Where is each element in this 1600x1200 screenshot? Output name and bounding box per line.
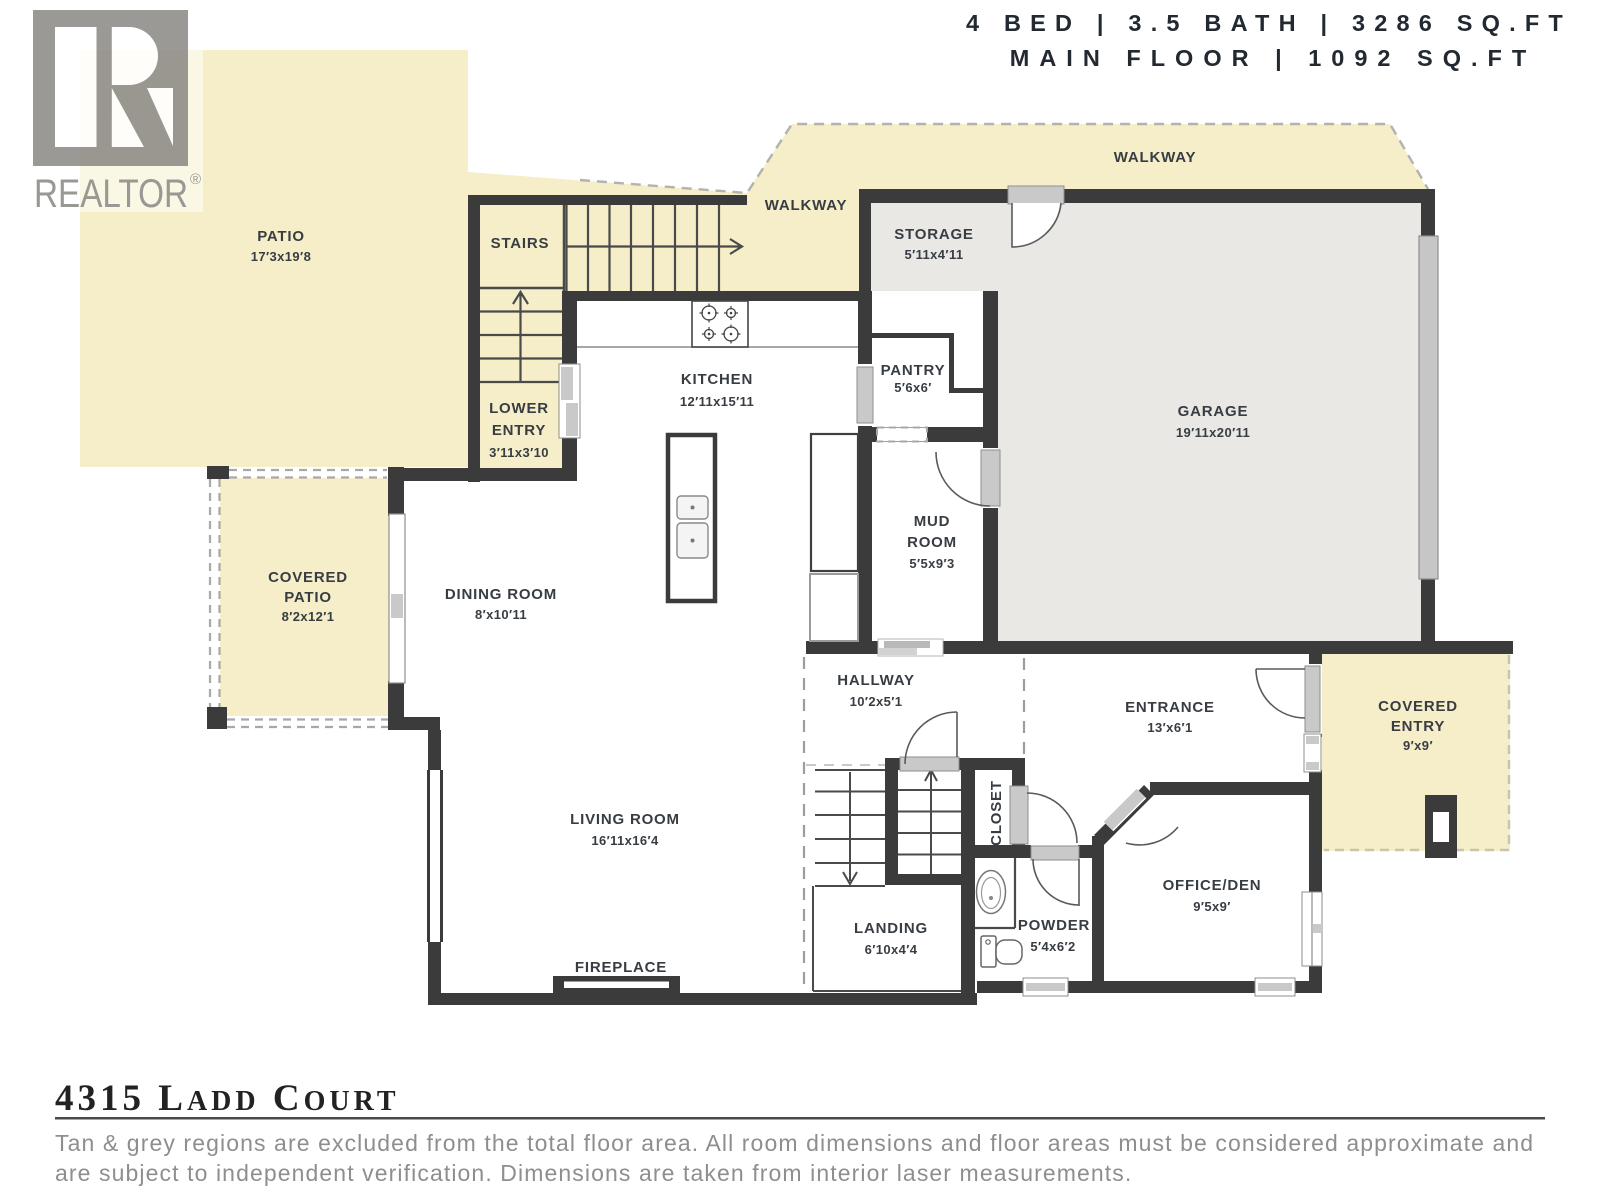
svg-text:LANDING: LANDING	[854, 920, 928, 937]
svg-text:10′2x5′1: 10′2x5′1	[850, 694, 903, 709]
svg-text:GARAGE: GARAGE	[1178, 403, 1249, 420]
svg-text:5′4x6′2: 5′4x6′2	[1030, 939, 1075, 954]
svg-text:8′2x12′1: 8′2x12′1	[282, 609, 335, 624]
svg-text:13′x6′1: 13′x6′1	[1147, 720, 1192, 735]
svg-text:4 BED | 3.5 BATH | 3286 SQ.FT: 4 BED | 3.5 BATH | 3286 SQ.FT	[966, 10, 1572, 36]
svg-text:are subject to independent ver: are subject to independent verification.…	[55, 1160, 1132, 1186]
svg-text:3′11x3′10: 3′11x3′10	[489, 445, 549, 460]
svg-text:ENTRY: ENTRY	[1391, 718, 1445, 735]
svg-text:COVERED: COVERED	[268, 569, 348, 586]
svg-text:Tan & grey regions are exclude: Tan & grey regions are excluded from the…	[55, 1130, 1534, 1156]
svg-text:9′5x9′: 9′5x9′	[1193, 899, 1231, 914]
svg-text:®: ®	[190, 171, 201, 188]
svg-text:COVERED: COVERED	[1378, 698, 1458, 715]
svg-text:PATIO: PATIO	[257, 228, 305, 245]
svg-text:HALLWAY: HALLWAY	[837, 672, 915, 689]
svg-text:6′10x4′4: 6′10x4′4	[865, 942, 918, 957]
svg-text:17′3x19′8: 17′3x19′8	[251, 249, 311, 264]
svg-text:8′x10′11: 8′x10′11	[475, 607, 527, 622]
svg-text:5′11x4′11: 5′11x4′11	[904, 247, 963, 262]
svg-text:REALTOR: REALTOR	[34, 172, 188, 216]
svg-text:ENTRANCE: ENTRANCE	[1125, 699, 1215, 716]
svg-text:POWDER: POWDER	[1018, 917, 1090, 934]
svg-text:9′x9′: 9′x9′	[1403, 738, 1433, 753]
svg-text:PATIO: PATIO	[284, 589, 332, 606]
svg-text:DINING ROOM: DINING ROOM	[445, 586, 557, 603]
svg-text:OFFICE/DEN: OFFICE/DEN	[1163, 877, 1262, 894]
svg-text:STORAGE: STORAGE	[894, 226, 974, 243]
svg-text:ROOM: ROOM	[907, 534, 957, 551]
svg-text:WALKWAY: WALKWAY	[765, 197, 848, 214]
svg-text:MUD: MUD	[914, 513, 951, 530]
svg-text:PANTRY: PANTRY	[881, 362, 946, 379]
svg-text:5′5x9′3: 5′5x9′3	[909, 556, 954, 571]
svg-text:WALKWAY: WALKWAY	[1114, 149, 1197, 166]
svg-text:LOWER: LOWER	[489, 400, 549, 417]
svg-text:STAIRS: STAIRS	[491, 235, 550, 252]
svg-text:CLOSET: CLOSET	[988, 780, 1005, 846]
svg-text:MAIN FLOOR | 1092 SQ.FT: MAIN FLOOR | 1092 SQ.FT	[1010, 45, 1536, 71]
svg-text:FIREPLACE: FIREPLACE	[575, 959, 667, 976]
svg-text:19′11x20′11: 19′11x20′11	[1176, 425, 1250, 440]
svg-text:LIVING ROOM: LIVING ROOM	[570, 811, 680, 828]
svg-text:16′11x16′4: 16′11x16′4	[591, 833, 659, 848]
svg-text:KITCHEN: KITCHEN	[681, 371, 753, 388]
svg-text:12′11x15′11: 12′11x15′11	[680, 394, 754, 409]
svg-text:5′6x6′: 5′6x6′	[894, 380, 932, 395]
svg-text:ENTRY: ENTRY	[492, 422, 546, 439]
